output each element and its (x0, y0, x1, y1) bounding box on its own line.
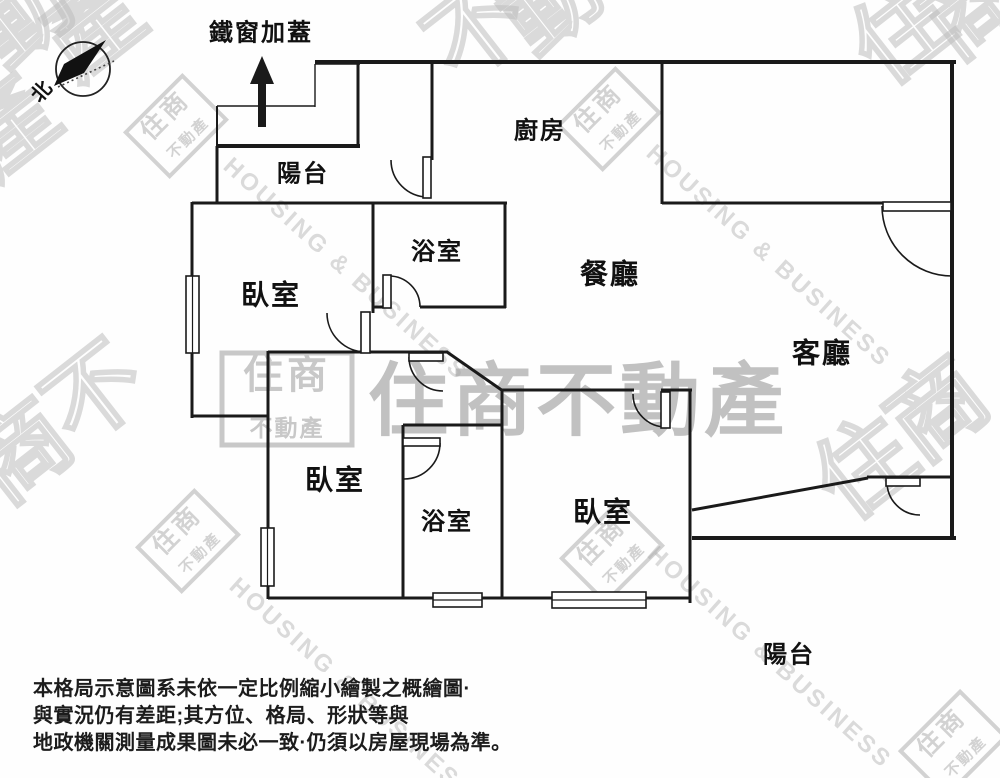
bedroom-1-door-leaf (361, 312, 370, 353)
disclaimer-text: 本格局示意圖系未依一定比例縮小繪製之概繪圖· 與實況仍有差距;其方位、格局、形狀… (33, 676, 512, 757)
bedroom-1-door-arc (327, 313, 366, 352)
entrance-door-arc (882, 206, 952, 276)
disclaimer-line-3: 地政機關測量成果圖未必一致·仍須以房屋現場為準。 (33, 730, 512, 757)
bathroom-2-door-arc (404, 443, 440, 479)
watermark-logo: 住商不動產 (901, 692, 1000, 778)
watermark-slogan: HOUSING & BUSINESS (641, 139, 896, 373)
room-label-bedroom-2: 臥室 (305, 464, 365, 496)
room-label-living-room: 客廳 (792, 337, 852, 369)
label-layer: 陽台廚房浴室臥室餐廳客廳臥室浴室臥室陽台鐵窗加蓋 (209, 19, 852, 669)
bathroom-1-door-leaf (383, 275, 391, 308)
disclaimer-line-2: 與實況仍有差距;其方位、格局、形狀等與 (33, 703, 512, 730)
bedroom-2-door-leaf (409, 353, 443, 361)
bedroom-3-door-leaf (661, 392, 670, 428)
room-label-kitchen: 廚房 (514, 117, 566, 145)
room-label-bathroom-2: 浴室 (421, 508, 473, 536)
canopy-arrow-icon (250, 56, 274, 84)
room-label-dining-room: 餐廳 (580, 258, 640, 290)
balcony-door-leaf (886, 478, 920, 486)
floorplan-drawing: 動產產不動住商住商商不HOUSING & BUSINESSHOUSING & B… (0, 0, 1000, 778)
entrance-door-leaf (883, 202, 951, 211)
watermark-logo: 住商不動產 (138, 491, 238, 591)
canopy-label: 鐵窗加蓋 (209, 19, 313, 47)
room-label-bedroom-3: 臥室 (573, 496, 633, 528)
room-label-bedroom-1: 臥室 (241, 279, 301, 311)
disclaimer-line-1: 本格局示意圖系未依一定比例縮小繪製之概繪圖· (33, 676, 512, 703)
bathroom-2-door-leaf (403, 438, 440, 446)
watermark-logo-top: 住商 (243, 353, 331, 397)
room-label-balcony-bottom: 陽台 (763, 641, 815, 669)
kitchen-balcony-door-leaf (423, 157, 431, 198)
watermark-logo-bottom: 不動產 (250, 415, 325, 441)
watermark-logo: 住商不動產 (126, 76, 226, 176)
canopy-arrow-shaft (258, 83, 266, 127)
room-label-balcony-top: 陽台 (277, 160, 329, 188)
watermark-logo: 住商不動產 (222, 353, 352, 445)
floorplan-page: 動產產不動住商住商商不HOUSING & BUSINESSHOUSING & B… (0, 0, 1000, 778)
watermark-logo: 住商不動產 (559, 69, 659, 169)
room-label-bathroom-1: 浴室 (411, 238, 463, 266)
watermark-center-text: 住商不動產 (368, 357, 788, 446)
